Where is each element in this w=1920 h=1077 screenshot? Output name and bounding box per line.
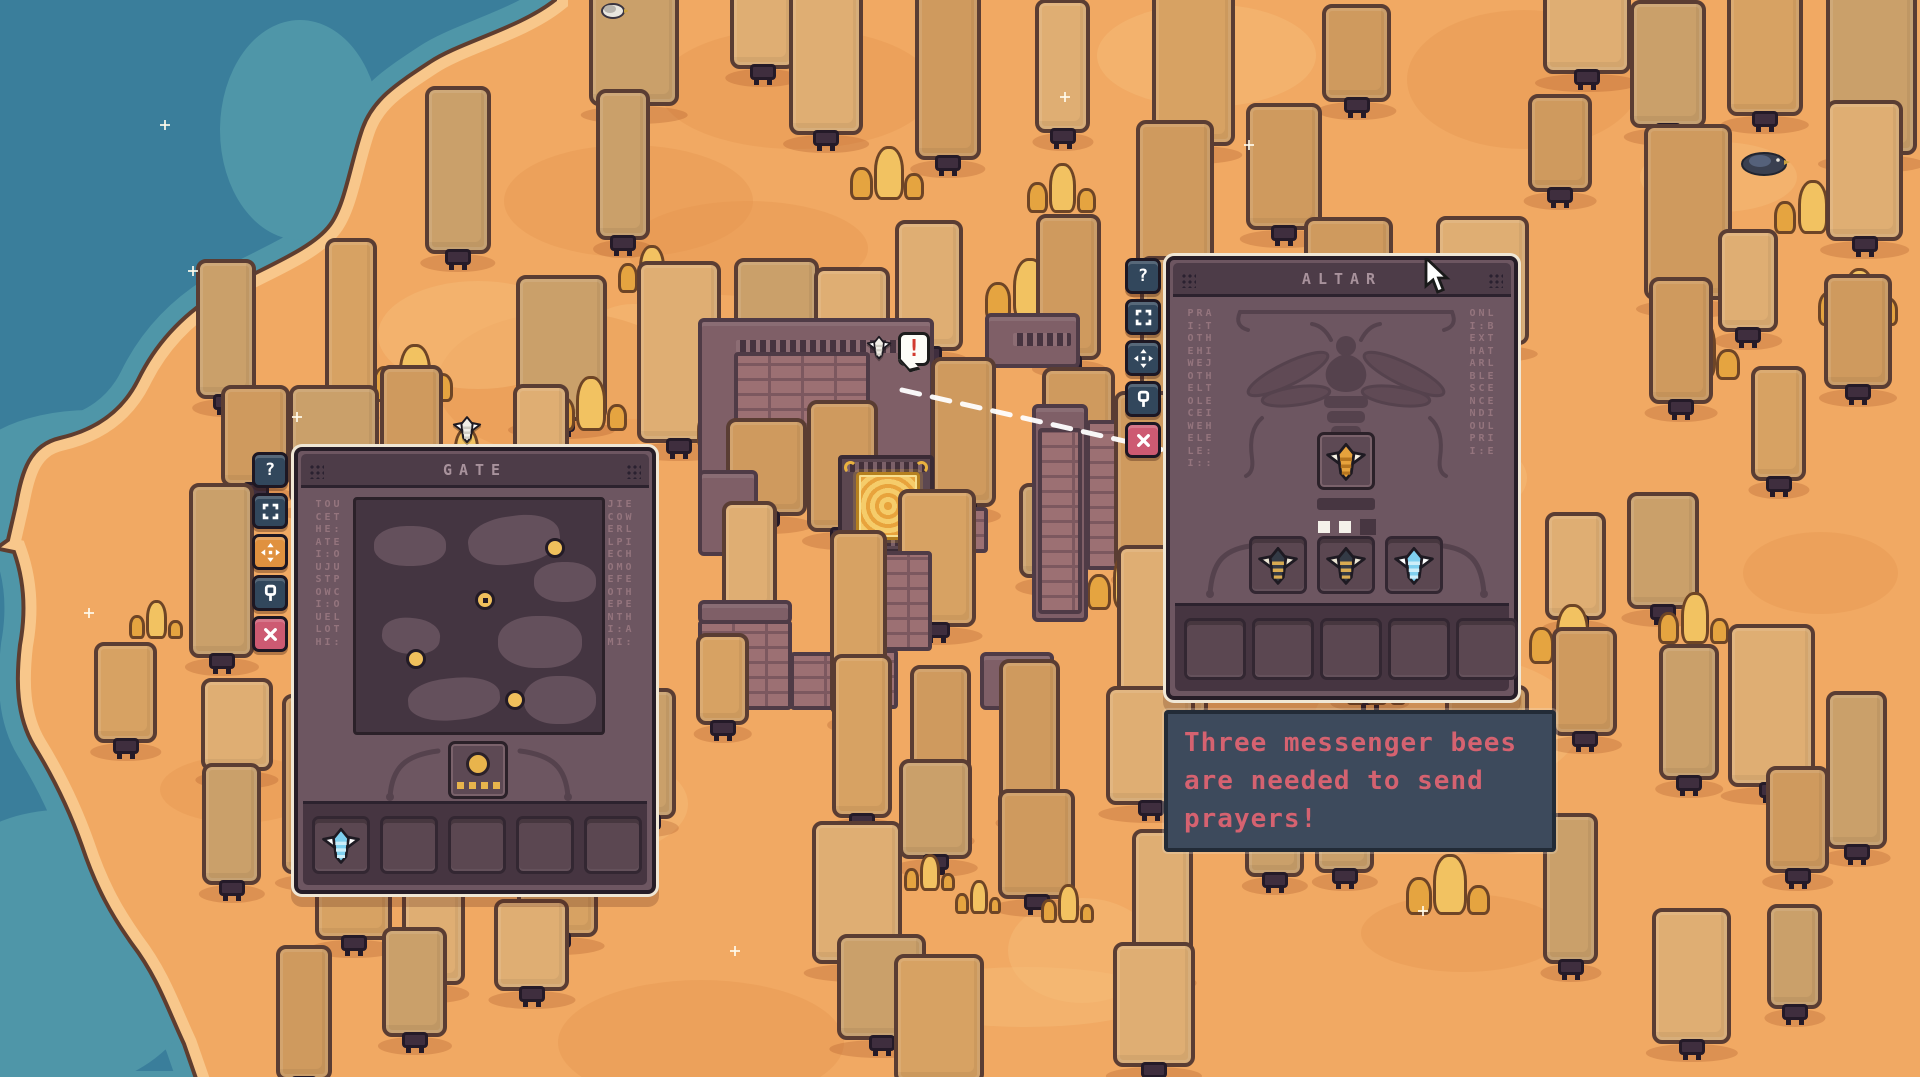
- frame-icon: [1135, 309, 1152, 326]
- stone-slab: [1659, 644, 1719, 780]
- gate-slot-empty[interactable]: [516, 816, 574, 874]
- stone-slab: [1728, 624, 1815, 787]
- altar-rune-text-right: ONL I:B EXT HAT ARL BLE SCE NCE NDI OUL …: [1460, 308, 1506, 458]
- map-dot-ring: [475, 590, 495, 610]
- gate-slot-ghost-bee[interactable]: [312, 816, 370, 874]
- gate-close-button[interactable]: [252, 616, 288, 652]
- stone-slab: [494, 899, 569, 991]
- gate-frame-button[interactable]: [252, 493, 288, 529]
- tooltip-line: are needed to send: [1184, 762, 1536, 800]
- stone-slab: [1630, 0, 1706, 128]
- stone-slab: [722, 501, 777, 615]
- sparkle: [84, 608, 94, 618]
- gate-slot-empty[interactable]: [584, 816, 642, 874]
- gate-slot-empty[interactable]: [380, 816, 438, 874]
- stone-slab: [1649, 277, 1713, 404]
- altar-slot-empty[interactable]: [1184, 618, 1246, 680]
- counter-square: [493, 782, 500, 789]
- altar-help-button[interactable]: ?: [1125, 258, 1161, 294]
- altar-slot-empty[interactable]: [1252, 618, 1314, 680]
- counter-big-dot: [466, 752, 490, 776]
- stone-slab: [1652, 908, 1731, 1044]
- white-bird: [598, 0, 628, 20]
- gate-move-button[interactable]: [252, 534, 288, 570]
- alert-bubble: !: [898, 332, 930, 366]
- gold-crystal: [129, 600, 188, 639]
- gate-rune-text-left: TOU CET HE: ATE I:O UJU STP OWC I:O UEL …: [306, 499, 352, 649]
- stone-slab: [832, 654, 892, 818]
- gate-pin-button[interactable]: [252, 575, 288, 611]
- tooltip-line: Three messenger bees: [1184, 724, 1536, 762]
- stone-slab: [1727, 0, 1803, 116]
- altar-close-button[interactable]: [1125, 422, 1161, 458]
- counter-square: [469, 782, 476, 789]
- gate-panel-buttons: ?: [252, 452, 288, 652]
- flourish: [1200, 538, 1256, 602]
- flourish: [376, 745, 446, 805]
- stone-slab: [998, 789, 1075, 899]
- pin-icon: [1135, 390, 1152, 409]
- altar-panel: ALTAR PRA I:T OTH EHI WEJ OTH ELT OLE CE…: [1166, 256, 1518, 700]
- gold-crystal: [1027, 163, 1102, 213]
- flourish: [512, 745, 582, 805]
- stone-slab: [894, 954, 984, 1077]
- titlebar-dots: [309, 464, 324, 479]
- map-dot: [505, 690, 525, 710]
- gold-crystal: [850, 146, 932, 200]
- sparkle: [730, 946, 740, 956]
- world-layer: [0, 0, 1920, 1077]
- stone-slab: [915, 0, 981, 160]
- altar-offering-slot[interactable]: [1317, 432, 1375, 490]
- stone-slab: [1767, 904, 1822, 1009]
- frame-icon: [262, 503, 279, 520]
- stone-slab: [1543, 0, 1631, 74]
- stone-slab: [1826, 100, 1903, 241]
- progress-square-filled: [1318, 521, 1330, 533]
- gate-slot-empty[interactable]: [448, 816, 506, 874]
- flourish: [1438, 538, 1494, 602]
- altar-inventory-strip: [1175, 603, 1509, 691]
- help-icon: ?: [1138, 266, 1148, 286]
- altar-panel-titlebar[interactable]: ALTAR: [1173, 263, 1511, 297]
- alert-glyph: !: [907, 336, 921, 362]
- mouse-cursor: [1424, 258, 1454, 294]
- stone-slab: [189, 483, 254, 658]
- map-dot: [545, 538, 565, 558]
- counter-square: [457, 782, 464, 789]
- altar-bee-slot-worker-bee[interactable]: [1317, 536, 1375, 594]
- stone-slab: [1826, 691, 1887, 849]
- gate-inventory-strip: [303, 801, 647, 885]
- altar-bee-slot-ghost-bee[interactable]: [1385, 536, 1443, 594]
- altar-frame-button[interactable]: [1125, 299, 1161, 335]
- gate-bee-marker[interactable]: [452, 414, 482, 448]
- titlebar-dots: [1488, 273, 1503, 288]
- stone-slab: [931, 357, 996, 507]
- move-icon: [261, 543, 280, 562]
- stone-slab: [202, 763, 261, 885]
- sparkle: [1060, 92, 1070, 102]
- stone-slab: [196, 259, 256, 399]
- stone-slab: [1322, 4, 1391, 102]
- tooltip-line: prayers!: [1184, 800, 1536, 838]
- altar-bee-slot-worker-bee[interactable]: [1249, 536, 1307, 594]
- gold-crystal: [1041, 884, 1100, 923]
- titlebar-dots: [626, 464, 641, 479]
- close-icon: [1136, 433, 1151, 448]
- gate-panel: GATE TOU CET HE: ATE I:O UJU STP OWC I:O…: [294, 447, 656, 894]
- gate-panel-title: GATE: [443, 461, 507, 479]
- stone-slab: [789, 0, 863, 135]
- map-dot: [406, 649, 426, 669]
- altar-slot-empty[interactable]: [1388, 618, 1450, 680]
- titlebar-dots: [1181, 273, 1196, 288]
- ruin-floor: [1038, 428, 1082, 614]
- gate-map: [353, 497, 605, 735]
- gold-crystal: [904, 854, 959, 891]
- stone-slab: [899, 759, 972, 859]
- gate-panel-titlebar[interactable]: GATE: [301, 454, 649, 488]
- sparkle: [292, 412, 302, 422]
- altar-bee-slots: [1249, 536, 1443, 594]
- offering-progress: [1318, 518, 1388, 536]
- altar-rune-text-left: PRA I:T OTH EHI WEJ OTH ELT OLE CEI WEH …: [1178, 308, 1224, 471]
- stone-slab: [1552, 627, 1617, 736]
- sparkle: [160, 120, 170, 130]
- stone-slab: [1035, 0, 1090, 133]
- sparkle: [1418, 906, 1428, 916]
- stone-slab: [1751, 366, 1806, 481]
- gate-counter: [448, 741, 508, 799]
- stone-slab: [325, 238, 377, 409]
- altar-move-button[interactable]: [1125, 340, 1161, 376]
- sparkle: [1244, 140, 1254, 150]
- tooltip: Three messenger bees are needed to send …: [1164, 710, 1556, 852]
- stone-slab: [1766, 766, 1829, 873]
- altar-slot-empty[interactable]: [1456, 618, 1518, 680]
- gold-crystal: [1658, 592, 1736, 644]
- progress-square-filled: [1339, 521, 1351, 533]
- stone-slab: [696, 633, 749, 725]
- stone-slab: [276, 945, 332, 1077]
- stone-slab: [1113, 942, 1195, 1067]
- stone-slab: [94, 642, 157, 743]
- stone-slab: [201, 678, 273, 771]
- gate-help-button[interactable]: ?: [252, 452, 288, 488]
- stone-slab: [1824, 274, 1892, 389]
- altar-bee-marker[interactable]: [866, 334, 892, 364]
- sparkle: [188, 266, 198, 276]
- stone-slab: [730, 0, 796, 69]
- altar-slot-empty[interactable]: [1320, 618, 1382, 680]
- stone-slab: [1246, 103, 1322, 230]
- altar-panel-buttons: ?: [1125, 258, 1161, 458]
- gold-crystal: [955, 880, 1006, 914]
- stone-slab: [425, 86, 491, 254]
- altar-pin-button[interactable]: [1125, 381, 1161, 417]
- help-icon: ?: [265, 460, 275, 480]
- stone-slab: [1528, 94, 1592, 192]
- offering-bar: [1317, 498, 1375, 510]
- counter-square: [481, 782, 488, 789]
- game-viewport: ! GATE TOU CET HE: ATE I:O UJU STP OW: [0, 0, 1920, 1077]
- altar-panel-title: ALTAR: [1302, 270, 1382, 288]
- progress-square-empty: [1360, 519, 1376, 535]
- stone-slab: [382, 927, 447, 1037]
- ruin-ridge: [1013, 333, 1071, 346]
- pin-icon: [262, 584, 279, 603]
- stone-slab: [596, 89, 650, 240]
- close-icon: [263, 627, 278, 642]
- dark-bird: [1738, 148, 1790, 178]
- move-icon: [1134, 349, 1153, 368]
